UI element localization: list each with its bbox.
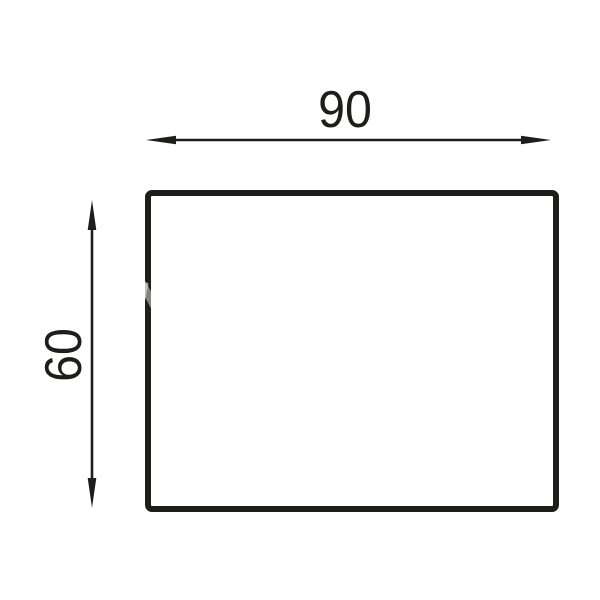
width-dimension-label: 90 (252, 84, 438, 136)
rectangle-shape (148, 193, 556, 509)
dimension-drawing-canvas: 90 60 (0, 0, 600, 600)
height-dimension-label: 60 (38, 262, 90, 448)
